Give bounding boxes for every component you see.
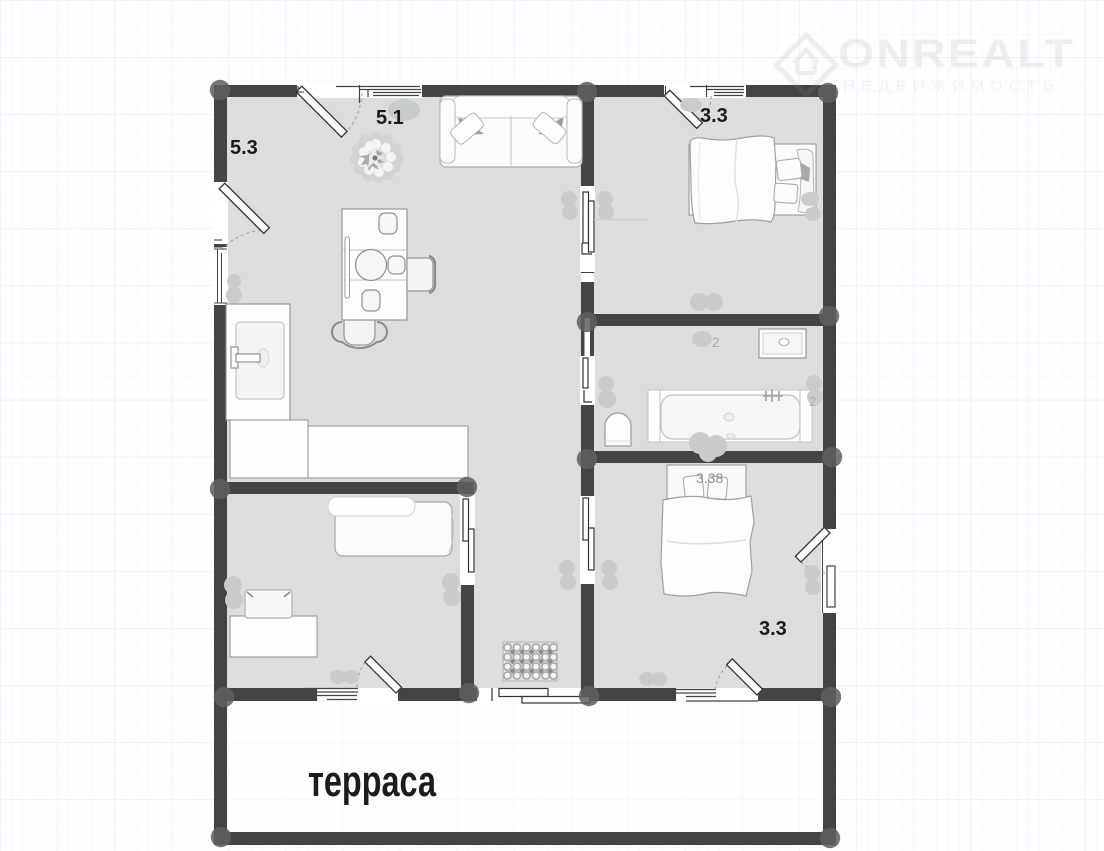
svg-text:ONREALT: ONREALT <box>838 32 1075 76</box>
svg-text:2: 2 <box>809 394 816 409</box>
svg-text:терраса: терраса <box>308 757 436 806</box>
svg-text:3.3: 3.3 <box>759 618 787 640</box>
svg-text:3.38: 3.38 <box>696 470 723 486</box>
svg-text:5.1: 5.1 <box>376 107 404 129</box>
svg-text:3.3: 3.3 <box>700 105 728 127</box>
svg-text:НЕДВИЖИМОСТЬ: НЕДВИЖИМОСТЬ <box>843 78 1060 93</box>
svg-text:5.3: 5.3 <box>230 137 258 159</box>
svg-text:2: 2 <box>712 334 720 350</box>
